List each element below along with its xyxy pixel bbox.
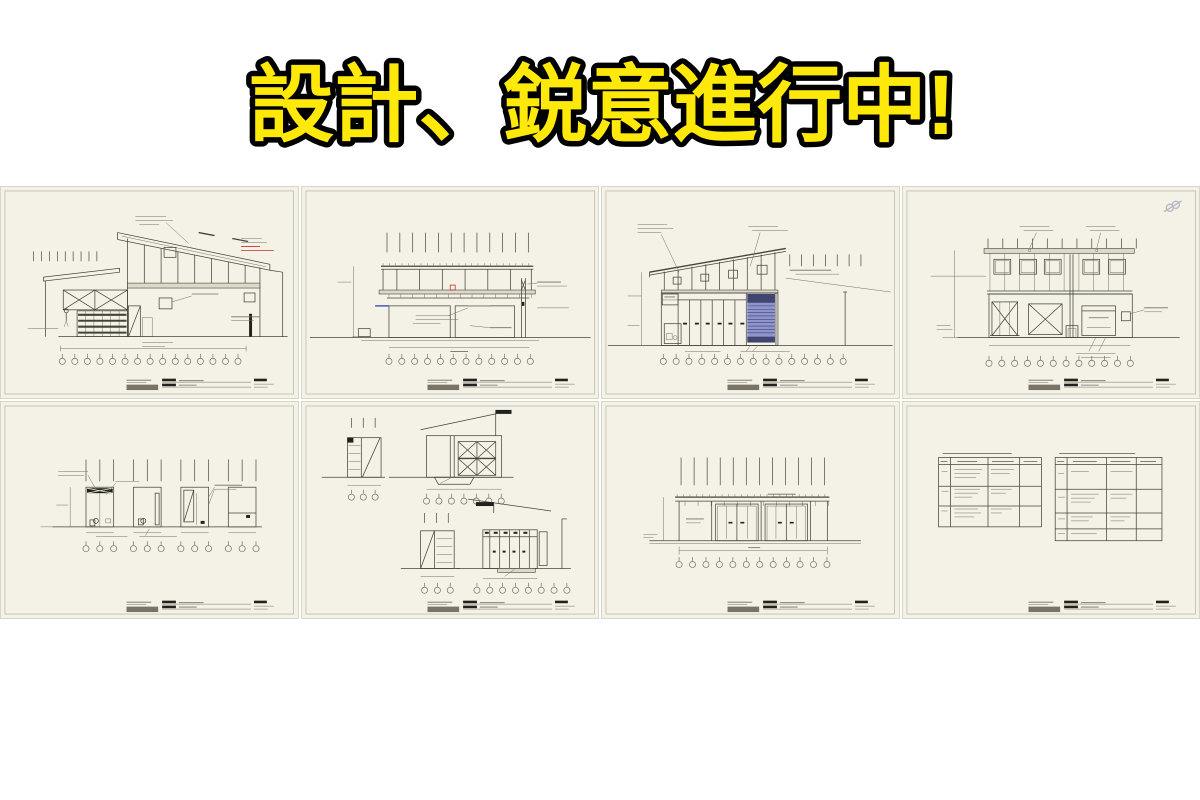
drawing-toilet-sections bbox=[1, 402, 298, 618]
annotations bbox=[135, 217, 266, 347]
sheet-elevation-south bbox=[601, 186, 900, 399]
grid-bubbles-bl bbox=[421, 583, 453, 594]
drawing-elevation-doors bbox=[602, 402, 899, 618]
title-block bbox=[127, 601, 274, 612]
drawing-frame bbox=[5, 406, 294, 614]
drawing-frame bbox=[5, 191, 294, 394]
drawing-elevation-south bbox=[602, 187, 899, 398]
bottom-right-lockers bbox=[455, 499, 571, 578]
section-box-3 bbox=[181, 487, 209, 527]
headline-text: 設計、鋭意進行中! bbox=[249, 58, 955, 152]
right-site-lines bbox=[786, 254, 891, 345]
bottom-left-cabinet bbox=[400, 513, 459, 576]
grid-bubbles-br bbox=[473, 583, 569, 594]
posts bbox=[679, 501, 827, 541]
red-revision-note bbox=[241, 246, 274, 250]
interior-details bbox=[128, 272, 282, 336]
sheet-partial-sections bbox=[301, 401, 600, 619]
grid-bubbles bbox=[83, 541, 117, 552]
grid-bubbles bbox=[660, 354, 846, 365]
right-column-assembly bbox=[521, 278, 568, 337]
section-box-2 bbox=[133, 487, 161, 527]
bracing-and-shelving bbox=[63, 290, 127, 337]
section-box-1 bbox=[86, 487, 114, 527]
grid-tick-row bbox=[681, 457, 825, 485]
title-block bbox=[427, 379, 574, 390]
ceiling-hangers bbox=[386, 294, 530, 298]
drawing-sheets-grid bbox=[0, 186, 1200, 619]
sheet-toilet-sections bbox=[0, 401, 299, 619]
wall-openings bbox=[388, 306, 514, 338]
grid-bubbles bbox=[676, 557, 830, 568]
grid-tick-row bbox=[34, 251, 97, 261]
ground-and-dimensions bbox=[930, 250, 1179, 345]
grid-tick-row bbox=[86, 459, 114, 481]
title-block bbox=[728, 379, 875, 390]
room-label bbox=[686, 519, 704, 523]
human-figure bbox=[64, 309, 68, 327]
clerestory-wall bbox=[128, 239, 260, 337]
ground-and-dimensions bbox=[41, 487, 262, 533]
sheet-cross-section-shed-roof bbox=[0, 186, 299, 399]
grid-bubbles bbox=[385, 354, 532, 365]
sheet-elevation-sliding-doors bbox=[601, 401, 900, 619]
red-marker bbox=[450, 285, 455, 290]
grid-bubbles-tl bbox=[348, 490, 378, 501]
door-unit-1 bbox=[716, 504, 758, 541]
ground-and-dimensions bbox=[28, 329, 288, 352]
drawing-frame bbox=[606, 406, 895, 614]
schedule-table-right bbox=[1055, 454, 1162, 541]
ground-and-dimensions bbox=[309, 338, 590, 352]
grid-tick-row bbox=[386, 233, 527, 253]
headline-banner: 設計、鋭意進行中! bbox=[0, 0, 1200, 186]
sheet-cross-section-flat-deck bbox=[301, 186, 600, 399]
blue-shutter bbox=[746, 293, 776, 346]
roof-band bbox=[984, 248, 1134, 291]
section-box-4 bbox=[228, 487, 256, 527]
sheet-finish-schedules bbox=[902, 401, 1200, 619]
grid-bubbles bbox=[59, 354, 241, 365]
title-block bbox=[127, 379, 274, 390]
top-right-section bbox=[388, 410, 513, 489]
drawing-elevation-north bbox=[903, 187, 1200, 398]
grid-bubbles bbox=[985, 356, 1132, 367]
roof-deck bbox=[379, 263, 535, 294]
top-left-cabinet bbox=[321, 418, 384, 485]
grid-tick-row bbox=[987, 239, 1135, 249]
title-block bbox=[1028, 379, 1175, 390]
drawing-schedule-tables bbox=[903, 402, 1200, 618]
lower-wall bbox=[987, 254, 1168, 337]
drawing-frame bbox=[906, 191, 1195, 394]
headline-svg: 設計、鋭意進行中! bbox=[0, 0, 1200, 186]
watermark-logo bbox=[1163, 201, 1181, 212]
schedule-table-left bbox=[938, 454, 1041, 527]
screenshot-root: { "banner": { "headline": "設計、鋭意進行中!" },… bbox=[0, 0, 1200, 800]
drawing-partial-sections bbox=[302, 402, 599, 618]
drawing-cross-section-b bbox=[302, 187, 599, 398]
clerestory-band bbox=[661, 252, 778, 293]
title-block bbox=[1028, 601, 1175, 612]
left-equipment bbox=[337, 266, 371, 337]
drawing-cross-section bbox=[1, 187, 298, 398]
title-block bbox=[728, 601, 875, 612]
window-row bbox=[993, 259, 1124, 274]
sheet-elevation-north bbox=[902, 186, 1200, 399]
title-block bbox=[427, 601, 574, 612]
